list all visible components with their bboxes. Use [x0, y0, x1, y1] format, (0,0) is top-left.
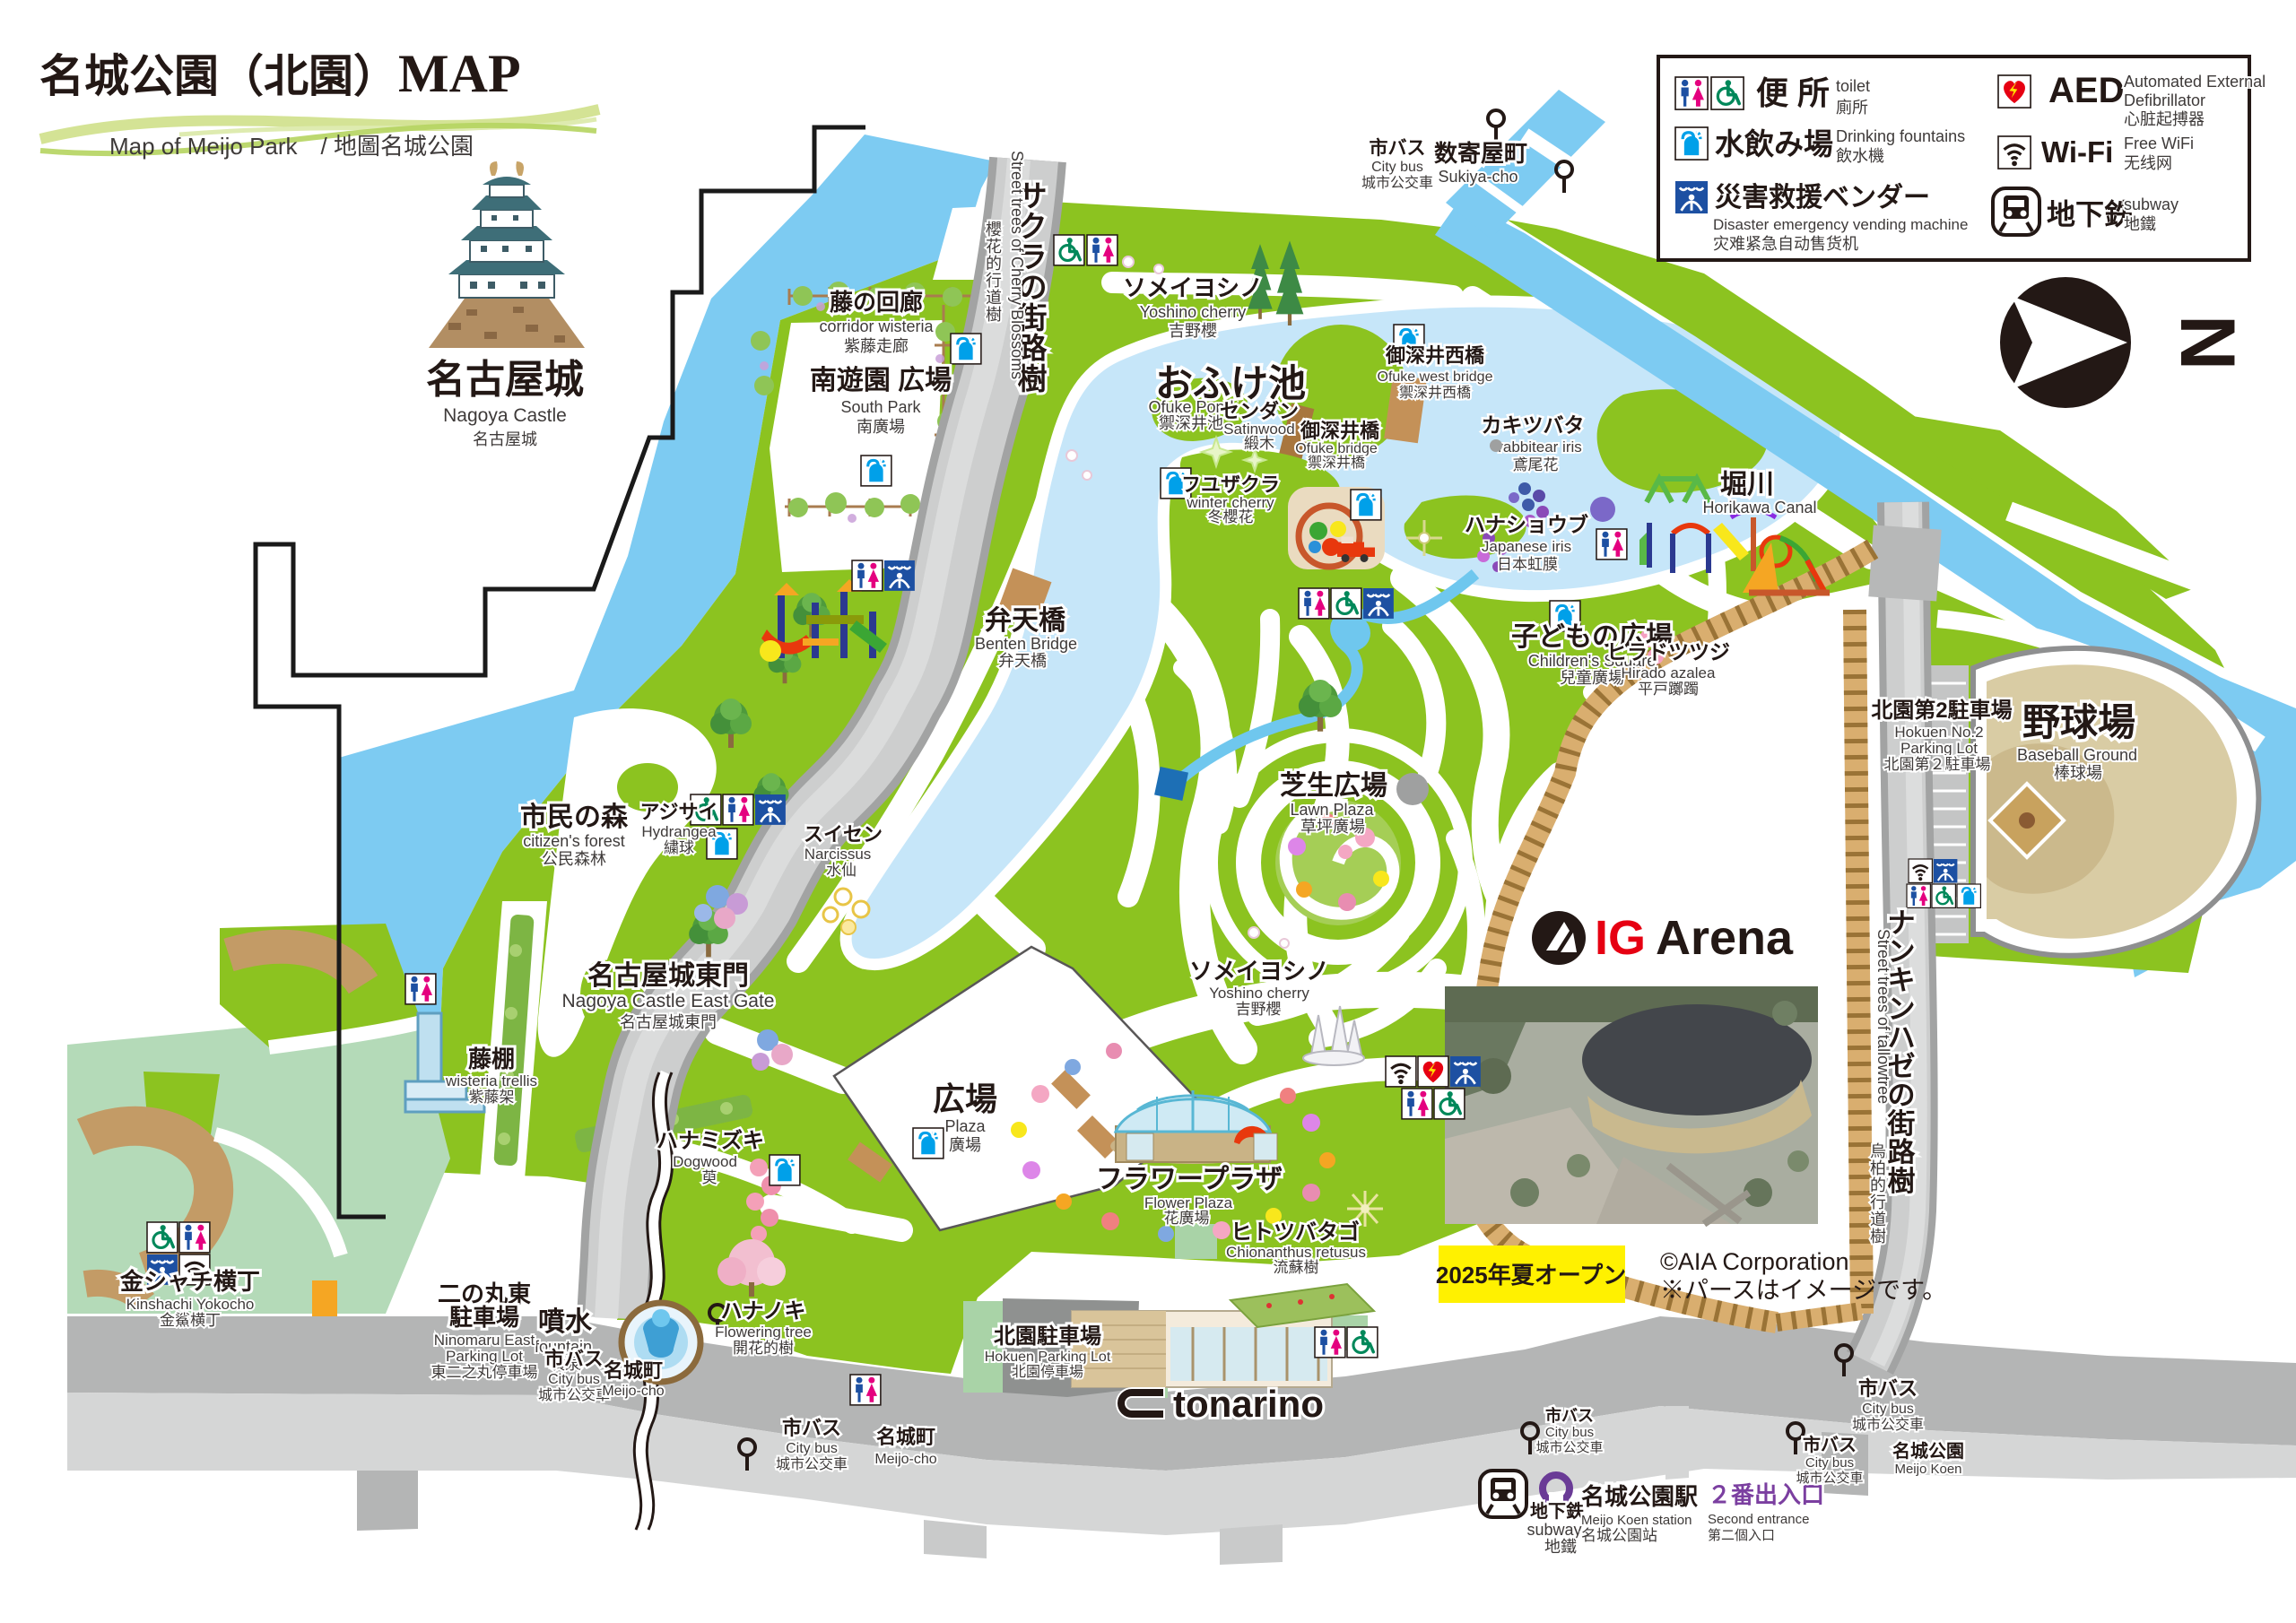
svg-text:北園第２駐車場: 北園第２駐車場 — [1884, 756, 1991, 773]
svg-text:城市公交車: 城市公交車 — [538, 1387, 610, 1403]
svg-text:紫藤架: 紫藤架 — [469, 1089, 515, 1106]
svg-text:名古屋城東門: 名古屋城東門 — [620, 1013, 717, 1031]
svg-text:花廣場: 花廣場 — [1164, 1210, 1210, 1227]
svg-text:名古屋城: 名古屋城 — [426, 358, 584, 402]
svg-text:Japanese iris: Japanese iris — [1482, 538, 1571, 555]
svg-text:Lawn Plaza: Lawn Plaza — [1290, 801, 1374, 819]
svg-text:市バス: 市バス — [1803, 1434, 1857, 1455]
svg-text:北園停車場: 北園停車場 — [1012, 1364, 1083, 1380]
svg-text:Ninomaru East: Ninomaru East — [434, 1332, 535, 1349]
svg-text:Nagoya Castle East Gate: Nagoya Castle East Gate — [562, 991, 775, 1011]
svg-text:Kinshachi Yokocho: Kinshachi Yokocho — [126, 1296, 255, 1313]
svg-text:弁天橋: 弁天橋 — [998, 652, 1047, 670]
svg-text:堀川: 堀川 — [1720, 470, 1774, 499]
svg-text:citizen's forest: citizen's forest — [523, 832, 624, 850]
svg-text:市民の森: 市民の森 — [520, 802, 629, 832]
svg-text:灾难紧急自动售货机: 灾难紧急自动售货机 — [1713, 235, 1858, 253]
svg-text:南遊園 広場: 南遊園 広場 — [810, 365, 952, 395]
svg-text:萸: 萸 — [702, 1169, 717, 1186]
svg-text:City bus: City bus — [786, 1441, 838, 1456]
svg-text:Parking Lot: Parking Lot — [446, 1348, 523, 1365]
svg-text:Disaster emergency vending mac: Disaster emergency vending machine — [1713, 216, 1968, 233]
svg-text:駐車場: 駐車場 — [449, 1304, 519, 1331]
svg-text:噴水: 噴水 — [538, 1307, 593, 1337]
svg-text:Benten Bridge: Benten Bridge — [975, 635, 1077, 653]
svg-text:芝生広場: 芝生広場 — [1280, 771, 1387, 801]
svg-text:Drinking fountains: Drinking fountains — [1836, 127, 1965, 145]
svg-text:カキツバタ: カキツバタ — [1482, 413, 1585, 437]
svg-text:アジサイ: アジサイ — [639, 801, 717, 823]
svg-text:Automated External: Automated External — [2124, 73, 2266, 91]
svg-text:tonarino: tonarino — [1173, 1383, 1324, 1425]
svg-text:鳶尾花: 鳶尾花 — [1513, 456, 1559, 473]
svg-text:2025年夏オープン: 2025年夏オープン — [1436, 1262, 1626, 1289]
svg-text:吉野櫻: 吉野櫻 — [1236, 1000, 1282, 1018]
svg-text:地鐵: 地鐵 — [2124, 215, 2156, 233]
svg-text:IG: IG — [1595, 911, 1646, 965]
svg-text:名城公園站: 名城公園站 — [1581, 1527, 1657, 1544]
svg-text:wisteria trellis: wisteria trellis — [445, 1072, 537, 1089]
svg-text:地下鉄: 地下鉄 — [1530, 1500, 1584, 1522]
svg-text:棒球場: 棒球場 — [2054, 764, 2102, 782]
svg-text:toilet: toilet — [1836, 77, 1870, 95]
svg-text:廁所: 廁所 — [1836, 98, 1868, 117]
svg-text:ハナショウブ: ハナショウブ — [1465, 513, 1588, 536]
svg-text:フラワープラザ: フラワープラザ — [1096, 1165, 1283, 1194]
svg-text:Horikawa Canal: Horikawa Canal — [1702, 499, 1816, 516]
svg-text:Dogwood: Dogwood — [673, 1153, 737, 1170]
svg-text:北園第2駐車場: 北園第2駐車場 — [1871, 698, 2012, 723]
svg-text:藤の回廊: 藤の回廊 — [830, 289, 923, 316]
svg-text:Map of Meijo Park / 地圖名城公園: Map of Meijo Park / 地圖名城公園 — [109, 133, 474, 160]
svg-text:Meijo Koen station: Meijo Koen station — [1581, 1513, 1692, 1528]
svg-text:城市公交車: 城市公交車 — [1361, 175, 1433, 191]
svg-text:Hokuen Parking Lot: Hokuen Parking Lot — [985, 1350, 1111, 1365]
svg-text:City bus: City bus — [1371, 160, 1423, 175]
svg-text:災害救援ベンダー: 災害救援ベンダー — [1715, 182, 1930, 213]
svg-text:市バス: 市バス — [1370, 137, 1426, 159]
svg-text:名城公園（北園）MAP: 名城公園（北園）MAP — [39, 44, 521, 103]
svg-text:城市公交車: 城市公交車 — [1852, 1417, 1924, 1433]
svg-text:廣場: 廣場 — [949, 1136, 981, 1154]
svg-text:City bus: City bus — [1545, 1425, 1594, 1440]
svg-text:禦深井橋: 禦深井橋 — [1308, 455, 1365, 471]
svg-text:御深井橋: 御深井橋 — [1300, 420, 1380, 442]
svg-text:水飲み場: 水飲み場 — [1715, 127, 1833, 161]
svg-text:名古屋城: 名古屋城 — [473, 430, 537, 448]
svg-text:AED: AED — [2048, 71, 2124, 110]
svg-text:Street trees of tallowtree: Street trees of tallowtree — [1874, 929, 1892, 1104]
svg-text:禦深井西橋: 禦深井西橋 — [1399, 385, 1471, 401]
svg-text:ハナミズキ: ハナミズキ — [657, 1128, 764, 1153]
svg-text:冬櫻花: 冬櫻花 — [1208, 508, 1254, 525]
svg-text:corridor wisteria: corridor wisteria — [819, 317, 934, 335]
svg-text:Baseball Ground: Baseball Ground — [2017, 746, 2137, 764]
svg-text:弁天橋: 弁天橋 — [985, 606, 1066, 636]
svg-text:城市公交車: 城市公交車 — [776, 1456, 848, 1472]
svg-text:Hirado azalea: Hirado azalea — [1622, 664, 1716, 681]
svg-text:City bus: City bus — [1805, 1455, 1854, 1471]
svg-text:Defibrillator: Defibrillator — [2124, 91, 2205, 109]
svg-text:City bus: City bus — [1862, 1402, 1914, 1417]
svg-text:Ofuke west bridge: Ofuke west bridge — [1378, 369, 1493, 385]
svg-text:平戸躑躅: 平戸躑躅 — [1638, 681, 1699, 698]
svg-text:ハナノキ: ハナノキ — [721, 1299, 806, 1324]
svg-text:Meijo Koen: Meijo Koen — [1894, 1462, 1961, 1477]
svg-text:市バス: 市バス — [544, 1348, 604, 1370]
svg-text:水仙: 水仙 — [826, 862, 857, 879]
svg-text:名城町: 名城町 — [876, 1426, 935, 1448]
svg-text:Second entrance: Second entrance — [1708, 1512, 1809, 1527]
svg-text:名城町: 名城町 — [604, 1359, 663, 1382]
svg-text:Hokuen No.2: Hokuen No.2 — [1894, 724, 1983, 741]
svg-text:飲水機: 飲水機 — [1836, 147, 1884, 165]
svg-text:Meijo-cho: Meijo-cho — [602, 1384, 664, 1399]
svg-text:フユザクラ: フユザクラ — [1181, 473, 1280, 496]
svg-text:城市公交車: 城市公交車 — [1535, 1439, 1603, 1455]
svg-text:便 所: 便 所 — [1756, 74, 1830, 111]
svg-text:スイセン: スイセン — [804, 823, 883, 846]
svg-text:名城公園駅: 名城公園駅 — [1581, 1483, 1698, 1510]
svg-text:兒童廣場: 兒童廣場 — [1560, 669, 1624, 687]
svg-text:ソメイヨシノ: ソメイヨシノ — [1123, 274, 1263, 301]
svg-text:センダン: センダン — [1220, 400, 1299, 422]
svg-text:Street trees of Cherry Blossom: Street trees of Cherry Blossoms — [1008, 151, 1026, 379]
svg-text:ヒトツバタゴ: ヒトツバタゴ — [1231, 1219, 1360, 1245]
svg-text:禦深井池: 禦深井池 — [1159, 414, 1223, 432]
svg-text:Yoshino cherry: Yoshino cherry — [1140, 303, 1246, 321]
svg-text:Arena: Arena — [1656, 911, 1794, 965]
svg-text:市バス: 市バス — [1858, 1377, 1918, 1400]
svg-text:広場: 広場 — [933, 1081, 997, 1117]
svg-text:緞木: 緞木 — [1244, 435, 1274, 452]
svg-text:Narcissus: Narcissus — [804, 846, 872, 863]
svg-text:地鐵: 地鐵 — [1544, 1538, 1577, 1556]
svg-text:烏柏的行道樹: 烏柏的行道樹 — [1870, 1142, 1886, 1245]
svg-text:北園駐車場: 北園駐車場 — [994, 1324, 1101, 1349]
svg-text:Meijo-cho: Meijo-cho — [874, 1452, 936, 1467]
svg-text:Flowering tree: Flowering tree — [715, 1324, 812, 1341]
svg-text:繍球: 繍球 — [664, 839, 694, 856]
svg-text:東二之丸停車場: 東二之丸停車場 — [431, 1364, 538, 1381]
svg-text:藤棚: 藤棚 — [468, 1046, 515, 1072]
svg-text:第二個入口: 第二個入口 — [1708, 1527, 1775, 1543]
svg-text:野球場: 野球場 — [2022, 701, 2135, 743]
svg-text:Free WiFi: Free WiFi — [2124, 135, 2194, 152]
svg-text:Sukiya-cho: Sukiya-cho — [1438, 168, 1518, 186]
svg-text:草坪廣場: 草坪廣場 — [1300, 818, 1365, 836]
svg-text:市バス: 市バス — [1545, 1406, 1594, 1425]
svg-text:Nagoya Castle: Nagoya Castle — [443, 405, 567, 426]
svg-text:无线网: 无线网 — [2124, 154, 2172, 172]
svg-text:※パースはイメージです。: ※パースはイメージです。 — [1660, 1277, 1946, 1304]
svg-text:金シャチ横丁: 金シャチ横丁 — [119, 1268, 260, 1295]
svg-text:Hydrangea: Hydrangea — [641, 823, 717, 840]
svg-text:金鯊横丁: 金鯊横丁 — [160, 1312, 221, 1329]
svg-text:subway: subway — [2124, 195, 2179, 213]
svg-text:©AIA Corporation: ©AIA Corporation — [1660, 1248, 1849, 1275]
svg-text:Ofuke bridge: Ofuke bridge — [1295, 441, 1378, 456]
svg-text:公民森林: 公民森林 — [542, 850, 606, 868]
svg-text:Plaza: Plaza — [944, 1117, 986, 1135]
svg-text:Yoshino cherry: Yoshino cherry — [1209, 985, 1309, 1002]
svg-text:市バス: 市バス — [782, 1417, 841, 1439]
svg-text:吉野櫻: 吉野櫻 — [1169, 322, 1217, 340]
svg-text:ソメイヨシノ: ソメイヨシノ — [1189, 958, 1329, 985]
svg-text:名古屋城東門: 名古屋城東門 — [587, 961, 749, 991]
svg-text:subway: subway — [1526, 1521, 1581, 1539]
svg-text:櫻花的行道樹: 櫻花的行道樹 — [986, 221, 1002, 324]
svg-text:御深井西橋: 御深井西橋 — [1385, 344, 1485, 367]
svg-text:地下鉄: 地下鉄 — [2047, 198, 2133, 230]
svg-text:日本虹膜: 日本虹膜 — [1497, 556, 1558, 573]
svg-text:N: N — [2164, 315, 2250, 370]
svg-text:流蘇樹: 流蘇樹 — [1274, 1259, 1319, 1276]
svg-text:Wi-Fi: Wi-Fi — [2041, 135, 2113, 169]
svg-text:South Park: South Park — [840, 398, 921, 416]
svg-text:ヒラドツツジ: ヒラドツツジ — [1606, 640, 1730, 664]
svg-text:紫藤走廊: 紫藤走廊 — [844, 337, 909, 355]
svg-text:南廣場: 南廣場 — [857, 418, 905, 436]
svg-text:城市公交車: 城市公交車 — [1796, 1470, 1863, 1486]
svg-text:City bus: City bus — [548, 1372, 600, 1387]
svg-text:Parking Lot: Parking Lot — [1900, 740, 1978, 757]
svg-text:心脏起搏器: 心脏起搏器 — [2124, 110, 2205, 128]
svg-text:数寄屋町: 数寄屋町 — [1434, 140, 1527, 167]
svg-text:rabbitear iris: rabbitear iris — [1498, 438, 1582, 456]
svg-text:名城公園: 名城公園 — [1892, 1440, 1964, 1462]
svg-text:開花的樹: 開花的樹 — [733, 1340, 794, 1357]
